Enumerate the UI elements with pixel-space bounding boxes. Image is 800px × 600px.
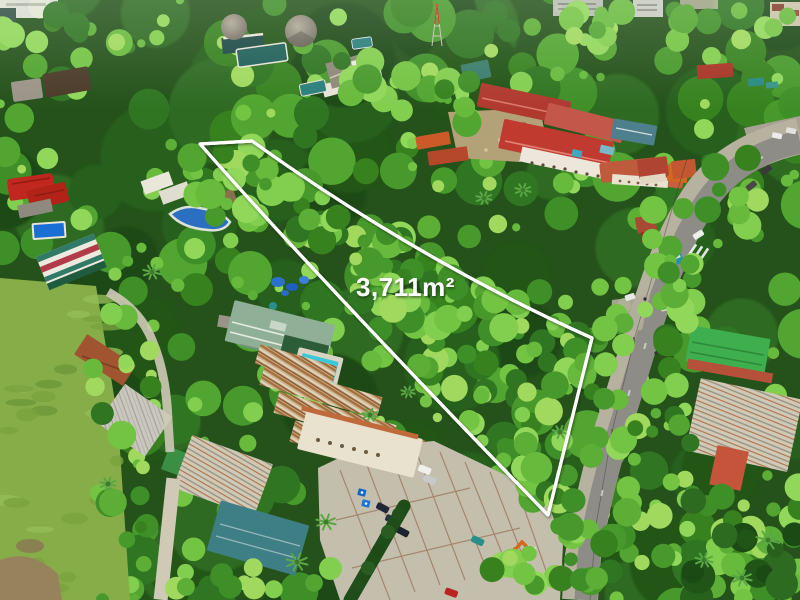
tree-canopy-blob: [302, 302, 310, 310]
tree-canopy-blob: [188, 397, 203, 412]
grass-tuft: [54, 364, 77, 374]
tree-canopy-blob: [136, 556, 152, 572]
tree-canopy-blob: [171, 279, 184, 292]
tree-canopy-blob: [594, 352, 618, 376]
tree-canopy-blob: [762, 470, 772, 480]
grass-tuft: [59, 572, 76, 582]
tree-canopy-blob: [242, 155, 260, 173]
tree-canopy-blob: [298, 209, 320, 231]
tree-canopy-blob: [223, 233, 238, 248]
tree-canopy-blob: [721, 553, 745, 577]
tree-canopy-blob: [641, 378, 668, 405]
tree-canopy-blob: [259, 178, 272, 191]
tree-canopy-blob: [651, 544, 675, 568]
tree-canopy-blob: [108, 268, 121, 281]
tree-canopy-blob: [544, 197, 578, 231]
tree-canopy-blob: [362, 351, 382, 371]
tree-canopy-blob: [513, 563, 536, 586]
tree-canopy-blob: [535, 397, 563, 425]
tree-canopy-blob: [553, 173, 574, 194]
tree-canopy-blob: [766, 568, 798, 600]
tree-canopy-blob: [612, 334, 635, 357]
tree-canopy-blob: [664, 373, 689, 398]
tree-canopy-blob: [681, 488, 707, 514]
tree-canopy-blob: [668, 414, 690, 436]
tree-canopy-blob: [521, 546, 537, 562]
tree-canopy-blob: [433, 413, 442, 422]
tree-canopy-blob: [646, 426, 658, 438]
tree-canopy-blob: [558, 295, 573, 310]
rect-pool-blue: [33, 222, 66, 239]
grass-tuft: [5, 399, 36, 406]
tree-canopy-blob: [590, 530, 618, 558]
tree-canopy-blob: [168, 333, 196, 361]
tree-canopy-blob: [737, 529, 757, 549]
tree-canopy-blob: [593, 388, 615, 410]
tree-canopy-blob: [17, 165, 26, 174]
grass-tuft: [4, 385, 34, 392]
tree-canopy-blob: [305, 574, 323, 592]
tree-canopy-blob: [165, 139, 177, 151]
tree-canopy-blob: [527, 279, 552, 304]
tree-canopy-blob: [71, 209, 93, 231]
tree-canopy-blob: [480, 557, 505, 582]
tree-canopy-blob: [541, 371, 569, 399]
tree-canopy-blob: [210, 566, 232, 588]
tree-canopy-blob: [243, 402, 263, 422]
tree-canopy-blob: [781, 175, 793, 187]
tree-canopy-blob: [135, 521, 147, 533]
tree-canopy-blob: [177, 578, 195, 596]
tree-canopy-blob: [205, 206, 226, 227]
tree-canopy-blob: [118, 354, 132, 368]
tree-canopy-blob: [526, 342, 542, 358]
tree-canopy-blob: [579, 444, 603, 468]
tree-canopy-blob: [496, 453, 512, 469]
tree-canopy-blob: [244, 558, 263, 577]
tree-canopy-blob: [512, 223, 520, 231]
tree-canopy-blob: [712, 523, 738, 549]
tree-canopy-blob: [564, 553, 578, 567]
tree-canopy-blob: [37, 148, 58, 169]
tree-canopy-blob: [223, 168, 246, 191]
tree-canopy-blob: [712, 183, 726, 197]
tree-canopy-blob: [713, 239, 723, 249]
tree-canopy-blob: [617, 476, 640, 499]
grass-tuft: [110, 456, 123, 467]
tree-canopy-blob: [265, 580, 283, 598]
tree-canopy-blob: [136, 461, 150, 475]
tree-canopy-blob: [248, 290, 258, 300]
grass-tuft: [3, 498, 29, 508]
tree-canopy-blob: [591, 278, 608, 295]
aerial-property-photo: CP: [0, 0, 800, 600]
tree-canopy-blob: [613, 498, 642, 527]
tree-canopy-blob: [122, 256, 133, 267]
atmospheric-haze: [0, 0, 800, 110]
tree-canopy-blob: [457, 345, 476, 364]
tree-canopy-blob: [353, 158, 379, 184]
motorbike: [643, 297, 646, 300]
tree-canopy-blob: [647, 503, 673, 529]
tree-canopy-blob: [228, 251, 272, 295]
tree-canopy-blob: [473, 350, 498, 375]
tree-canopy-blob: [349, 253, 362, 266]
tree-canopy-blob: [107, 421, 136, 450]
tree-canopy-blob: [634, 555, 649, 570]
tree-canopy-blob: [131, 486, 150, 505]
tree-canopy-blob: [239, 435, 256, 452]
tree-canopy-blob: [140, 376, 162, 398]
tree-canopy-blob: [417, 215, 440, 238]
tree-canopy-blob: [483, 177, 497, 191]
tree-canopy-blob: [746, 188, 769, 211]
tree-canopy-blob: [673, 198, 694, 219]
tree-canopy-blob: [100, 303, 122, 325]
tree-canopy-blob: [319, 557, 342, 580]
grass-tuft: [26, 526, 54, 533]
tree-canopy-blob: [457, 225, 481, 249]
tree-canopy-blob: [83, 359, 103, 379]
tree-canopy-blob: [521, 452, 553, 484]
tree-canopy-blob: [184, 238, 205, 259]
tree-canopy-blob: [180, 273, 213, 306]
tree-canopy-blob: [99, 489, 127, 517]
tree-canopy-blob: [432, 180, 444, 192]
tree-canopy-blob: [639, 196, 667, 224]
tree-canopy-blob: [615, 277, 632, 294]
tree-canopy-blob: [515, 407, 530, 422]
tree-canopy-blob: [694, 196, 721, 223]
tree-canopy-blob: [694, 119, 714, 139]
area-label: 3,711m²: [356, 272, 455, 302]
tree-canopy-blob: [497, 438, 513, 454]
tree-canopy-blob: [637, 302, 653, 318]
tree-canopy-blob: [681, 434, 699, 452]
tree-canopy-blob: [358, 235, 371, 248]
tree-canopy-blob: [556, 513, 584, 541]
tree-canopy-blob: [766, 502, 780, 516]
tree-canopy-blob: [502, 551, 517, 566]
tree-canopy-blob: [140, 341, 160, 361]
tree-canopy-blob: [709, 484, 735, 510]
tree-canopy-blob: [642, 229, 662, 249]
tree-canopy-blob: [628, 453, 641, 466]
tree-canopy-blob: [489, 313, 518, 342]
tree-canopy-blob: [119, 531, 136, 548]
tree-canopy-blob: [457, 306, 473, 322]
tree-canopy-blob: [473, 388, 489, 404]
tree-canopy-blob: [293, 124, 317, 148]
tree-canopy-blob: [679, 521, 695, 537]
tree-canopy-blob: [326, 205, 351, 230]
tree-canopy-blob: [767, 347, 779, 359]
tree-canopy-blob: [729, 187, 749, 207]
tree-canopy-blob: [150, 257, 163, 270]
tree-canopy-blob: [517, 383, 536, 402]
tree-canopy-blob: [185, 381, 221, 417]
grass-tuft: [16, 408, 38, 421]
tree-canopy-blob: [735, 145, 761, 171]
tree-canopy-blob: [434, 305, 462, 333]
tree-canopy-blob: [232, 276, 244, 288]
tree-canopy-blob: [136, 243, 146, 253]
tree-canopy-blob: [592, 316, 618, 342]
tree-canopy-blob: [561, 488, 585, 512]
tree-canopy-blob: [441, 375, 468, 402]
grass-tuft: [35, 380, 62, 389]
tree-canopy-blob: [408, 162, 417, 171]
grass-tuft: [31, 391, 56, 402]
tree-canopy-blob: [658, 262, 680, 284]
grass-tuft: [67, 310, 90, 318]
tree-canopy-blob: [85, 377, 104, 396]
tree-canopy-blob: [682, 560, 705, 583]
tree-canopy-blob: [738, 499, 750, 511]
tree-canopy-blob: [627, 420, 643, 436]
tree-canopy-blob: [651, 408, 662, 419]
tree-canopy-blob: [586, 567, 608, 589]
tree-canopy-blob: [91, 402, 114, 425]
tree-canopy-blob: [681, 255, 700, 274]
tree-canopy-blob: [182, 538, 206, 562]
tree-canopy-blob: [195, 179, 225, 209]
tree-canopy-blob: [378, 258, 393, 273]
aerial-scene: CP: [0, 0, 800, 600]
tree-canopy-blob: [701, 153, 729, 181]
tree-canopy-blob: [489, 215, 507, 233]
grass-tuft: [61, 513, 88, 524]
tree-canopy-blob: [663, 473, 680, 490]
tree-canopy-blob: [653, 327, 683, 357]
